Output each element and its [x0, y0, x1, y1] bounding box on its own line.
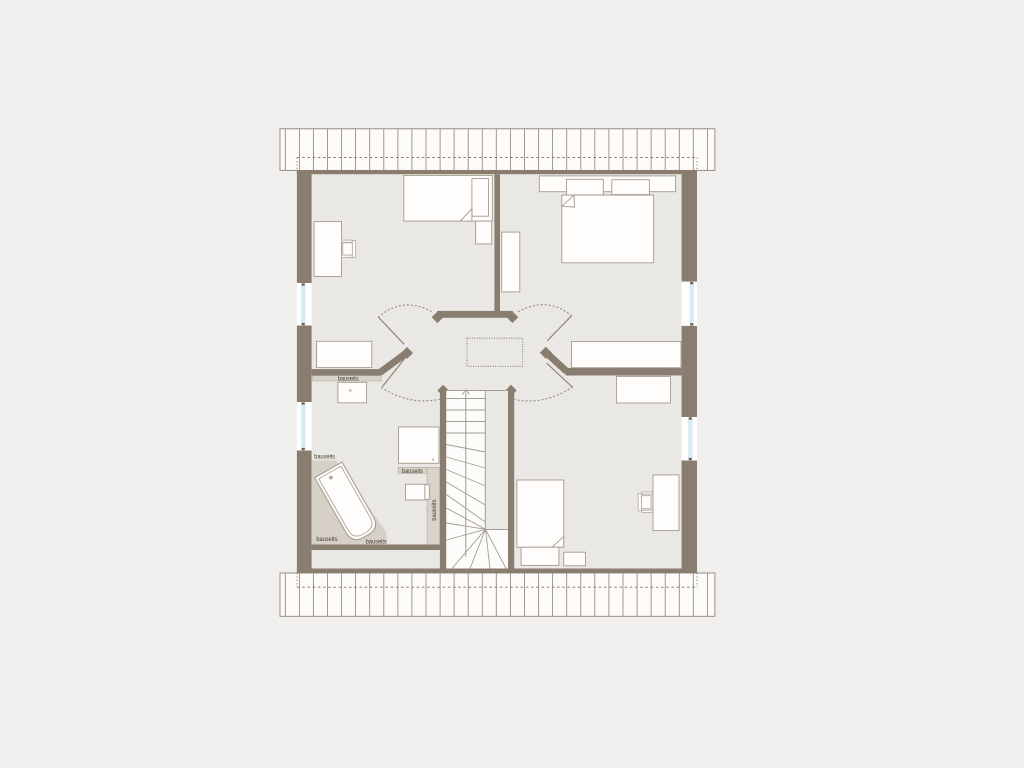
svg-text:bauseits: bauseits [316, 536, 338, 543]
svg-text:bauseits: bauseits [314, 453, 336, 460]
svg-text:bauseits: bauseits [366, 539, 388, 546]
svg-text:bauseits: bauseits [431, 499, 438, 521]
svg-text:bauseits: bauseits [338, 376, 360, 383]
svg-text:bauseits: bauseits [402, 468, 424, 475]
